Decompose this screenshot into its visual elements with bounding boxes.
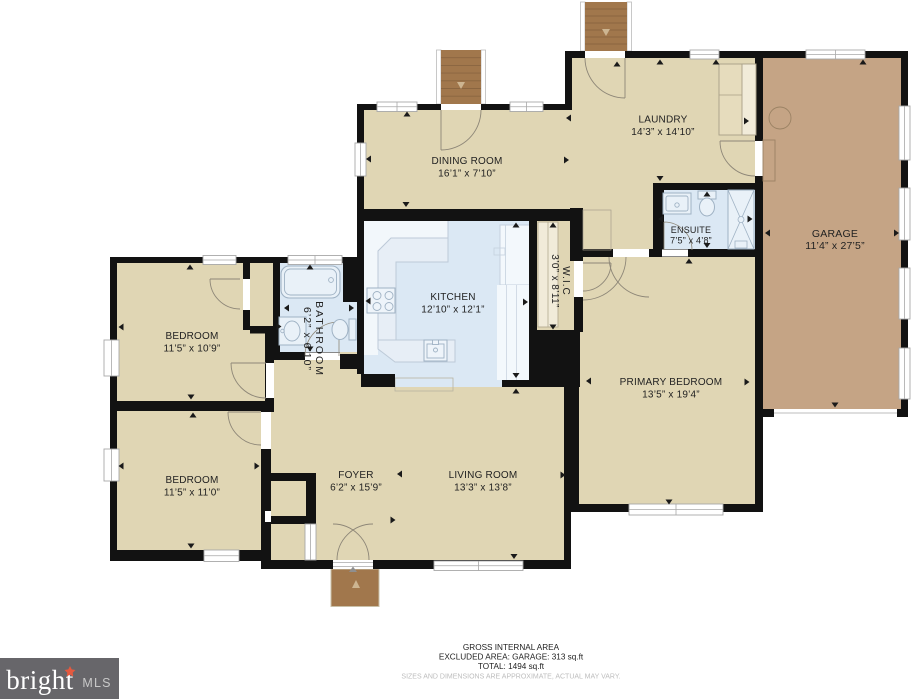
- svg-text:3’0” x 8’11”: 3’0” x 8’11”: [549, 254, 560, 308]
- svg-text:14’3” x 14’10”: 14’3” x 14’10”: [631, 127, 694, 138]
- svg-text:BATHROOM: BATHROOM: [313, 301, 325, 377]
- svg-text:16’1” x 7’10”: 16’1” x 7’10”: [438, 169, 496, 180]
- svg-text:LAUNDRY: LAUNDRY: [638, 115, 687, 126]
- svg-text:W.I.C: W.I.C: [560, 266, 571, 295]
- svg-text:7’5” x 4’8”: 7’5” x 4’8”: [670, 236, 712, 246]
- svg-text:DINING ROOM: DINING ROOM: [431, 156, 502, 167]
- svg-text:6’2” x 15’9”: 6’2” x 15’9”: [330, 483, 382, 494]
- svg-text:BEDROOM: BEDROOM: [165, 475, 218, 486]
- svg-text:GARAGE: GARAGE: [812, 228, 858, 240]
- svg-text:6’2” x 6’10”: 6’2” x 6’10”: [301, 307, 313, 371]
- svg-text:13’3” x 13’8”: 13’3” x 13’8”: [454, 483, 512, 494]
- svg-text:LIVING ROOM: LIVING ROOM: [449, 470, 518, 481]
- svg-text:ENSUITE: ENSUITE: [671, 225, 711, 235]
- svg-text:11’5” x 10’9”: 11’5” x 10’9”: [164, 344, 221, 355]
- svg-text:SIZES AND DIMENSIONS ARE APPRO: SIZES AND DIMENSIONS ARE APPROXIMATE, AC…: [401, 674, 620, 681]
- svg-text:KITCHEN: KITCHEN: [430, 292, 475, 303]
- svg-text:EXCLUDED AREA: GARAGE: 313 sq.: EXCLUDED AREA: GARAGE: 313 sq.ft: [439, 653, 584, 662]
- svg-text:GROSS INTERNAL AREA: GROSS INTERNAL AREA: [463, 643, 560, 652]
- svg-text:FOYER: FOYER: [338, 470, 373, 481]
- svg-text:11’5” x 11’0”: 11’5” x 11’0”: [164, 488, 220, 499]
- svg-text:TOTAL: 1494 sq.ft: TOTAL: 1494 sq.ft: [478, 662, 545, 671]
- svg-text:BEDROOM: BEDROOM: [165, 331, 218, 342]
- svg-text:MLS: MLS: [82, 676, 111, 690]
- svg-text:PRIMARY BEDROOM: PRIMARY BEDROOM: [620, 377, 723, 388]
- svg-text:11’4” x 27’5”: 11’4” x 27’5”: [805, 240, 865, 252]
- svg-text:12’10” x 12’1”: 12’10” x 12’1”: [421, 305, 484, 316]
- svg-text:bright: bright: [6, 665, 74, 695]
- svg-text:13’5” x 19’4”: 13’5” x 19’4”: [642, 390, 700, 401]
